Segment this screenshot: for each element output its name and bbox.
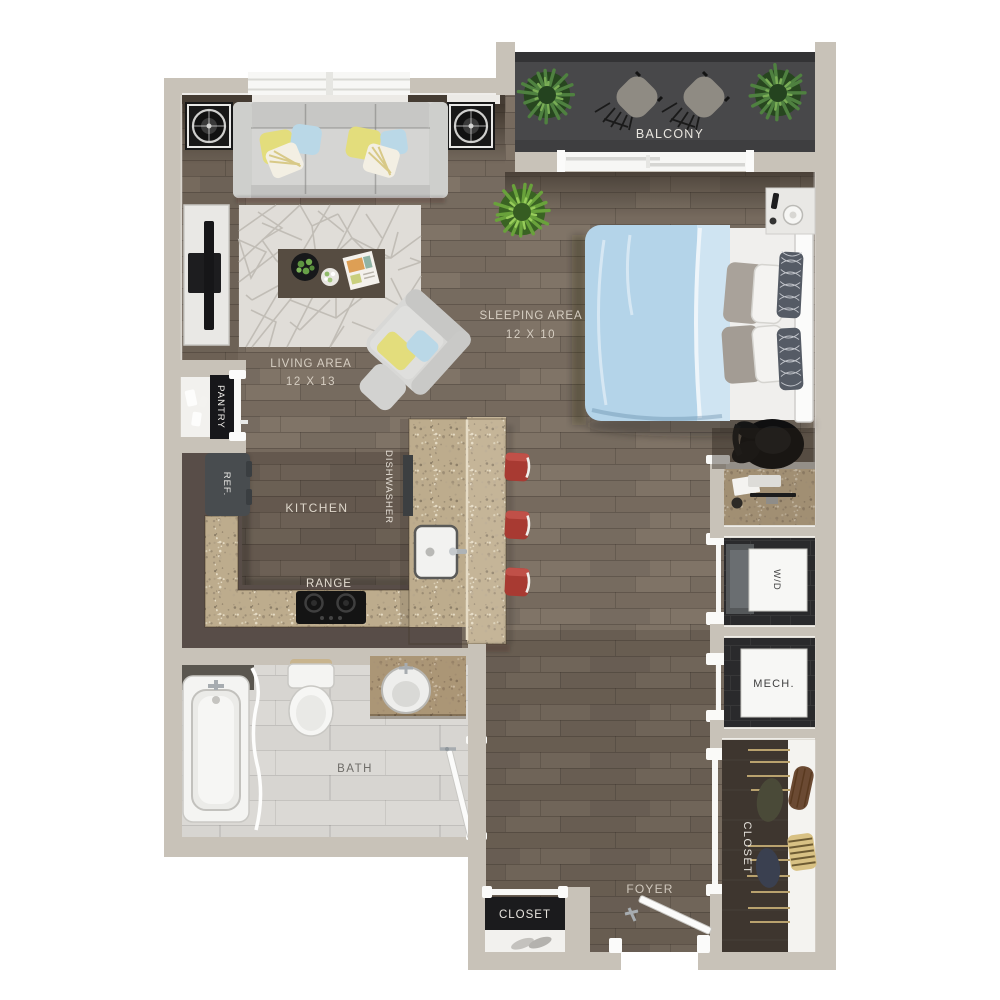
svg-text:12 X 10: 12 X 10 <box>506 329 556 341</box>
svg-text:BATH: BATH <box>337 763 373 775</box>
svg-text:SLEEPING AREA: SLEEPING AREA <box>479 310 582 322</box>
svg-text:BALCONY: BALCONY <box>636 127 704 141</box>
svg-text:FOYER: FOYER <box>626 882 673 896</box>
svg-text:W/D: W/D <box>771 569 782 590</box>
svg-text:RANGE: RANGE <box>306 578 352 590</box>
svg-text:12 X 13: 12 X 13 <box>286 376 336 388</box>
svg-text:REF.: REF. <box>221 472 232 497</box>
svg-text:LIVING AREA: LIVING AREA <box>270 358 351 370</box>
svg-text:PANTRY: PANTRY <box>215 385 226 429</box>
svg-text:CLOSET: CLOSET <box>499 909 551 921</box>
svg-text:MECH.: MECH. <box>753 678 794 690</box>
svg-text:KITCHEN: KITCHEN <box>285 501 348 515</box>
svg-text:DISHWASHER: DISHWASHER <box>383 450 394 524</box>
svg-text:CLOSET: CLOSET <box>741 821 753 874</box>
